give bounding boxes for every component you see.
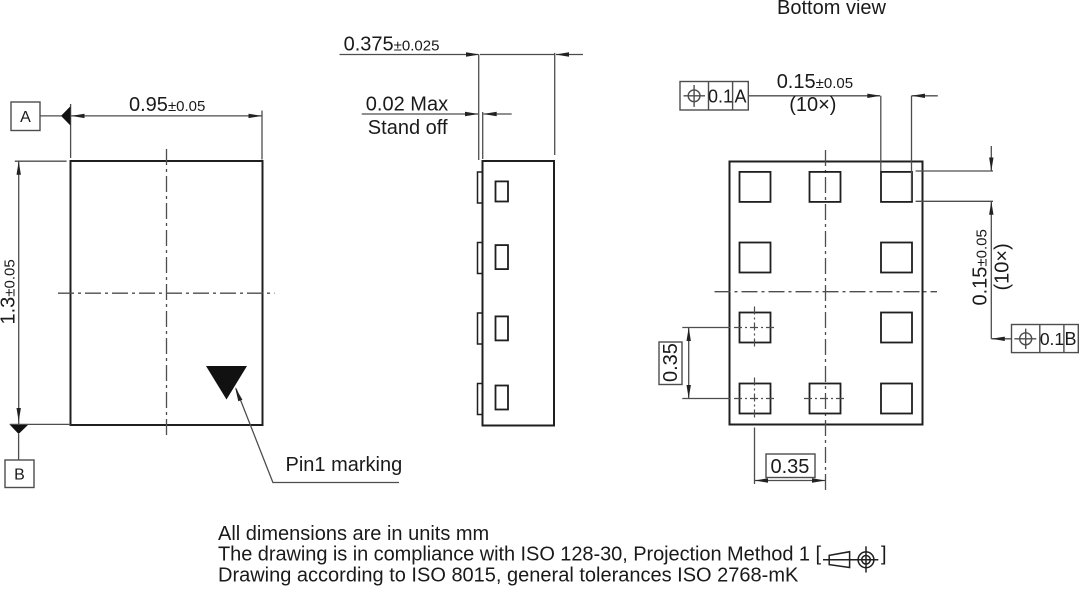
svg-text:0.15±0.05: 0.15±0.05 [777, 71, 853, 93]
svg-text:0.15±0.05: 0.15±0.05 [970, 229, 992, 305]
svg-text:(10×): (10×) [992, 243, 1014, 290]
svg-text:0.375±0.025: 0.375±0.025 [344, 33, 440, 55]
svg-text:(10×): (10×) [789, 94, 836, 116]
svg-text:Bottom view: Bottom view [777, 0, 886, 19]
svg-text:0.1: 0.1 [708, 87, 733, 107]
svg-text:Pin1 marking: Pin1 marking [286, 454, 403, 476]
svg-text:0.35: 0.35 [771, 456, 810, 478]
svg-text:A: A [20, 109, 31, 126]
svg-text:1.3±0.05: 1.3±0.05 [0, 259, 20, 324]
svg-text:Drawing according to ISO 8015,: Drawing according to ISO 8015, general t… [218, 564, 799, 586]
svg-text:Stand off: Stand off [368, 117, 448, 139]
svg-text:0.35: 0.35 [660, 343, 682, 382]
svg-text:The drawing is in compliance w: The drawing is in compliance with ISO 12… [218, 544, 821, 566]
svg-text:B: B [14, 467, 25, 484]
svg-text:B: B [1064, 329, 1076, 349]
svg-text:]: ] [881, 544, 887, 566]
svg-text:0.1: 0.1 [1040, 329, 1064, 349]
svg-text:All dimensions are in units mm: All dimensions are in units mm [218, 523, 489, 545]
svg-text:0.95±0.05: 0.95±0.05 [129, 94, 205, 116]
svg-text:A: A [734, 87, 746, 107]
svg-text:0.02 Max: 0.02 Max [366, 94, 448, 116]
